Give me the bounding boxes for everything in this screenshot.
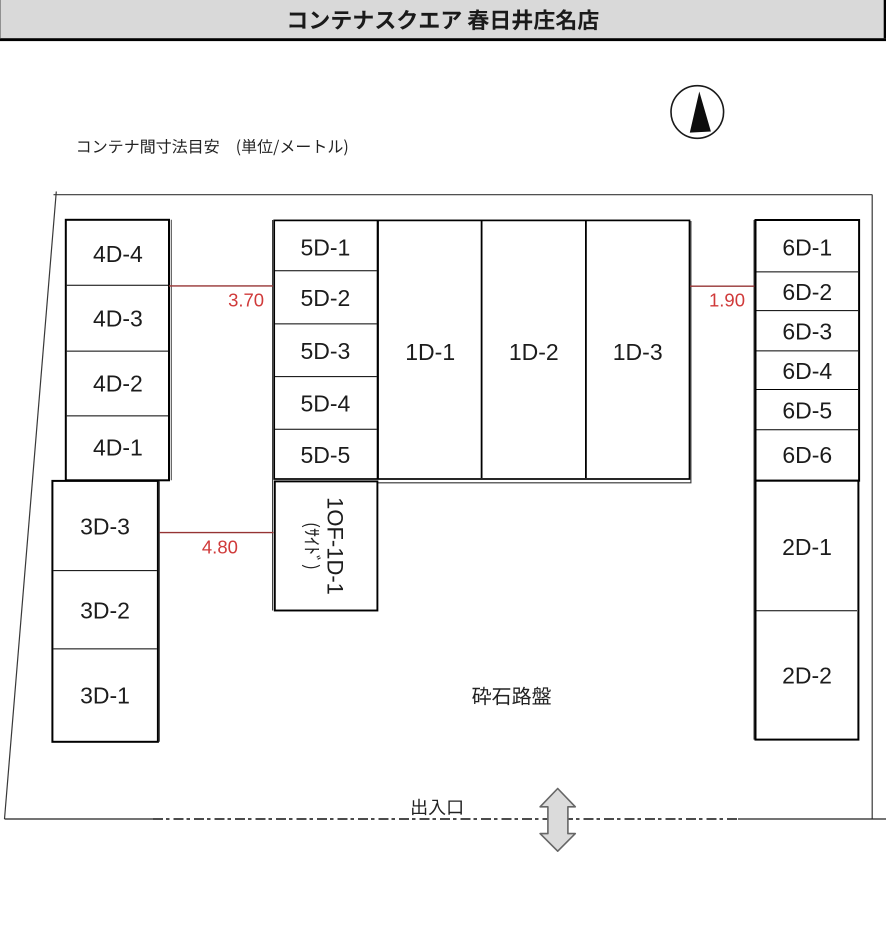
svg-text:5D-4: 5D-4 <box>300 391 350 417</box>
svg-text:1OF-1D-1: 1OF-1D-1 <box>322 497 347 595</box>
svg-text:2D-1: 2D-1 <box>782 534 832 560</box>
svg-text:1.90: 1.90 <box>709 290 745 311</box>
svg-text:4.80: 4.80 <box>202 536 238 557</box>
svg-text:3D-1: 3D-1 <box>80 683 130 709</box>
svg-text:1D-1: 1D-1 <box>405 339 455 365</box>
svg-text:4D-2: 4D-2 <box>93 371 143 397</box>
svg-text:5D-5: 5D-5 <box>300 442 350 468</box>
svg-text:5D-3: 5D-3 <box>300 338 350 364</box>
svg-text:4D-4: 4D-4 <box>93 241 143 267</box>
svg-text:6D-3: 6D-3 <box>782 319 832 345</box>
svg-text:3.70: 3.70 <box>228 289 264 310</box>
svg-text:5D-1: 5D-1 <box>300 235 350 261</box>
svg-text:3D-2: 3D-2 <box>80 597 130 623</box>
svg-text:6D-5: 6D-5 <box>782 398 832 424</box>
svg-text:6D-2: 6D-2 <box>782 279 832 305</box>
svg-text:1D-3: 1D-3 <box>613 339 663 365</box>
svg-text:3D-3: 3D-3 <box>80 514 130 540</box>
svg-text:5D-2: 5D-2 <box>300 285 350 311</box>
svg-text:6D-1: 6D-1 <box>782 235 832 261</box>
svg-text:1D-2: 1D-2 <box>509 339 559 365</box>
svg-text:6D-6: 6D-6 <box>782 442 832 468</box>
svg-text:4D-3: 4D-3 <box>93 306 143 332</box>
svg-text:4D-1: 4D-1 <box>93 435 143 461</box>
svg-text:6D-4: 6D-4 <box>782 358 832 384</box>
svg-text:2D-2: 2D-2 <box>782 662 832 688</box>
